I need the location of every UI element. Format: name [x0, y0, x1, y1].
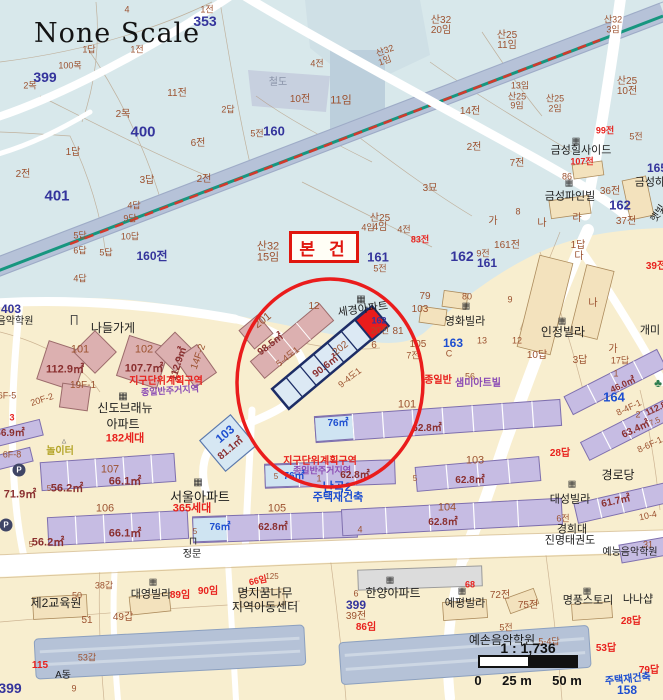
apartment-icon: ▦ [458, 587, 467, 596]
apartment-icon: ▦ [462, 302, 471, 311]
scale-bar-black-segment [528, 657, 576, 666]
subject-property-callout: 본 건 [289, 231, 359, 263]
apartment-icon: ▦ [583, 587, 592, 596]
apartment-icon: ▦ [572, 137, 581, 146]
parking-icon: P [13, 464, 26, 477]
parking-icon: P [0, 519, 13, 532]
scale-tick-25m: 25 m [495, 673, 539, 688]
apartment-icon: ▦ [118, 392, 127, 402]
tree-icon: ♣ [654, 377, 662, 389]
gate-icon: ⊓ [189, 537, 198, 548]
scale-bar-graphic [478, 655, 578, 668]
cadastral-map: 41전3531답1전100목3992목11전2답10전4전철도2목4006전1답… [0, 0, 663, 700]
scale-tick-0: 0 [470, 673, 486, 688]
apartment-icon: ▦ [568, 480, 577, 489]
apartment-icon: ▦ [193, 478, 202, 488]
scale-ratio: 1 : 1,736 [478, 640, 578, 656]
apartment-icon: ▦ [356, 295, 365, 305]
apartment-icon: ▦ [386, 576, 395, 585]
apartment-icon: ▦ [149, 578, 158, 587]
store-icon: ∏ [69, 315, 78, 326]
map-icons-layer: ▦▦▦▦▦▦▦▦▦▦▦▦∏⊓▵♣PP [0, 0, 663, 700]
scale-tick-50m: 50 m [545, 673, 589, 688]
apartment-icon: ▦ [558, 317, 567, 326]
scale-bar: 1 : 1,736 0 25 m 50 m [455, 638, 635, 693]
apartment-icon: ▦ [565, 179, 574, 188]
map-scale-note: None Scale [34, 18, 200, 49]
playground-icon: ▵ [62, 437, 67, 446]
